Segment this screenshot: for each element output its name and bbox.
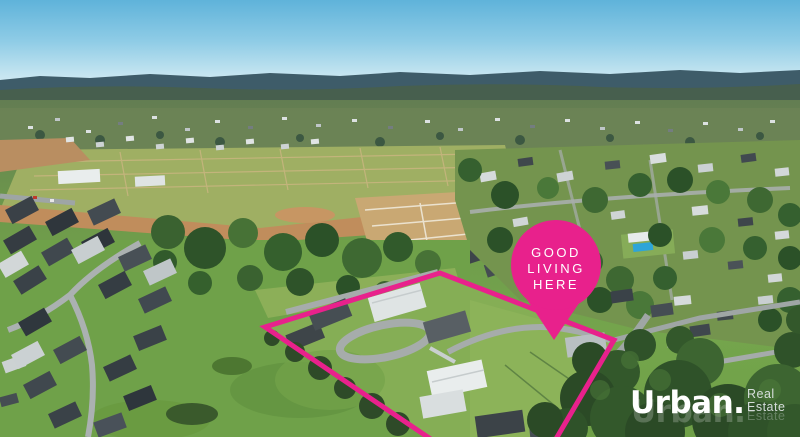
brand-wordmark: Urban. xyxy=(630,385,744,421)
pin-text-line-3: HERE xyxy=(533,277,579,292)
pin-text-line-2: LIVING xyxy=(527,261,585,276)
aerial-photo-stage: GOOD LIVING HERE Urban. Urban. Estate Re… xyxy=(0,0,800,437)
tagline-line-1: Real xyxy=(747,387,775,401)
tagline-line-2: Estate xyxy=(747,400,785,414)
pin-text-line-1: GOOD xyxy=(531,245,581,260)
field-bush xyxy=(166,403,218,425)
aerial-photo: GOOD LIVING HERE Urban. Urban. Estate Re… xyxy=(0,0,800,437)
display-building-roof xyxy=(58,169,101,184)
